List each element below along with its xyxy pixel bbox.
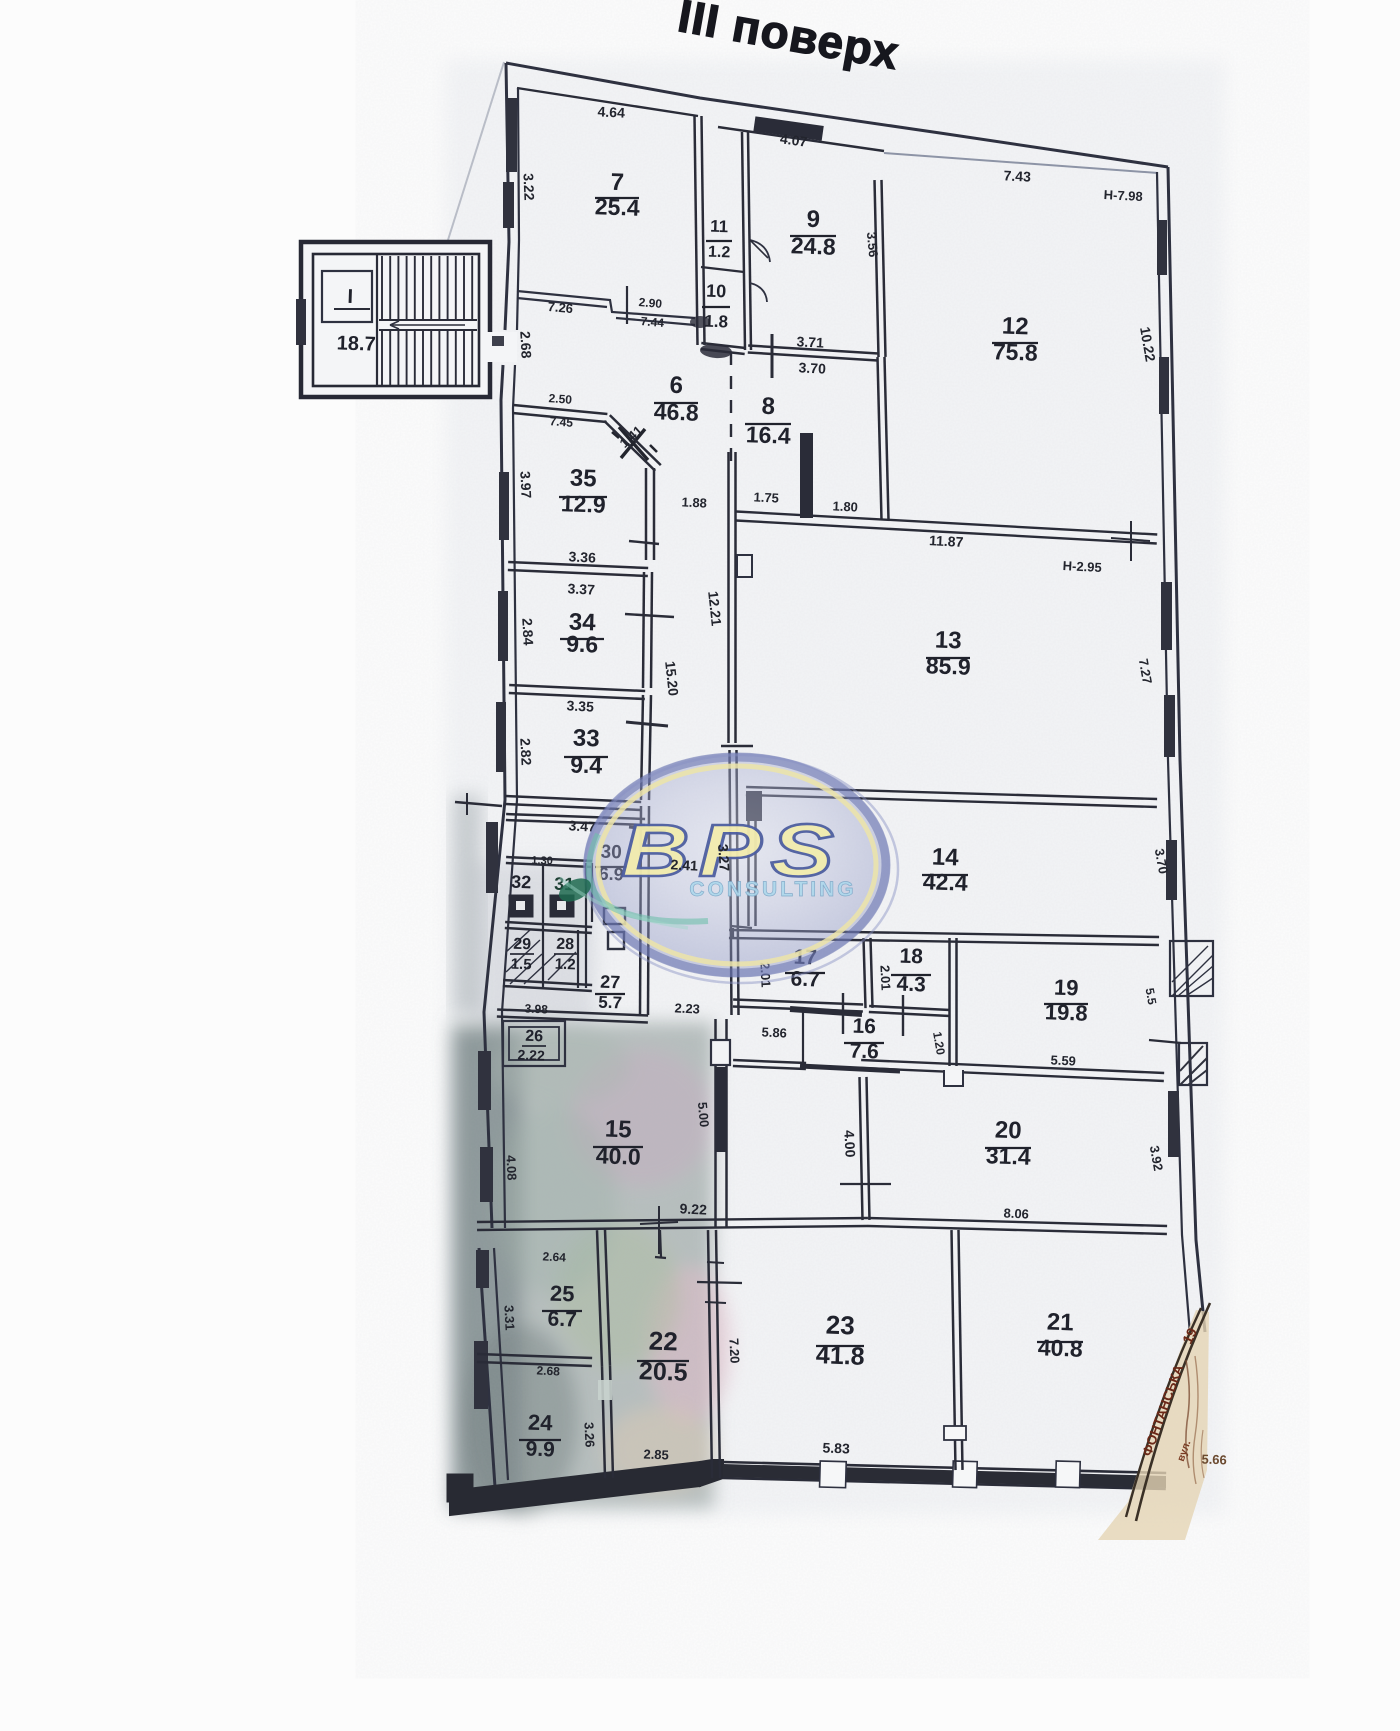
svg-text:11: 11 [710,217,729,237]
svg-text:11.87: 11.87 [929,532,964,550]
svg-text:1.30: 1.30 [531,855,553,868]
svg-text:5.5: 5.5 [1143,987,1160,1006]
svg-text:85.9: 85.9 [925,652,971,680]
svg-text:46.8: 46.8 [653,398,699,426]
svg-text:1.8: 1.8 [704,312,728,332]
svg-text:12: 12 [1001,313,1029,341]
svg-text:16: 16 [852,1015,876,1039]
svg-text:9: 9 [806,206,820,233]
svg-text:2.85: 2.85 [643,1447,669,1463]
svg-text:3.56: 3.56 [864,231,881,258]
svg-text:3.70: 3.70 [798,359,826,376]
svg-text:5.66: 5.66 [1201,1452,1227,1468]
svg-text:4.3: 4.3 [896,973,926,997]
svg-text:3.31: 3.31 [501,1305,517,1331]
svg-text:5.59: 5.59 [1050,1052,1076,1068]
svg-text:3.71: 3.71 [796,333,824,350]
svg-text:7.44: 7.44 [640,314,665,330]
svg-text:24.8: 24.8 [790,232,836,260]
svg-text:16.4: 16.4 [745,421,791,449]
svg-text:2.84: 2.84 [519,618,536,646]
svg-text:3.35: 3.35 [566,697,594,714]
svg-text:7.6: 7.6 [849,1040,879,1064]
svg-text:CONSULTING: CONSULTING [689,878,856,901]
svg-text:1.2: 1.2 [554,956,575,974]
svg-text:41.8: 41.8 [815,1341,865,1371]
svg-text:5.7: 5.7 [598,993,622,1013]
svg-text:1.2: 1.2 [708,244,731,262]
svg-text:1.5: 1.5 [510,956,531,974]
svg-text:27: 27 [600,972,621,993]
svg-text:I: I [347,286,353,308]
svg-text:6: 6 [669,372,683,399]
svg-text:31.4: 31.4 [985,1142,1031,1170]
svg-text:4.00: 4.00 [841,1130,858,1158]
svg-text:25.4: 25.4 [594,193,640,221]
svg-text:1.80: 1.80 [832,498,858,514]
svg-text:4.08: 4.08 [503,1155,519,1181]
svg-text:1.75: 1.75 [753,489,779,505]
svg-text:7.45: 7.45 [549,414,574,430]
svg-text:3.37: 3.37 [567,580,595,597]
svg-text:19: 19 [1054,975,1079,1001]
svg-text:32: 32 [511,872,532,893]
svg-text:5.83: 5.83 [822,1440,850,1457]
svg-text:25: 25 [550,1281,575,1307]
svg-text:20.5: 20.5 [638,1357,688,1387]
svg-text:3.27: 3.27 [715,844,733,873]
svg-text:7: 7 [610,169,624,196]
svg-text:2.64: 2.64 [542,1249,566,1264]
svg-text:24: 24 [528,1410,554,1436]
svg-text:40.0: 40.0 [595,1142,641,1170]
svg-text:8.06: 8.06 [1003,1205,1029,1221]
svg-text:18.7: 18.7 [336,332,376,355]
svg-text:20: 20 [994,1117,1022,1145]
svg-text:40.8: 40.8 [1037,1334,1083,1362]
svg-text:29: 29 [513,936,531,954]
svg-text:9.6: 9.6 [566,630,599,657]
svg-text:3.22: 3.22 [521,173,538,201]
svg-text:2.50: 2.50 [548,391,573,407]
svg-text:18: 18 [899,945,923,969]
svg-text:2.82: 2.82 [517,738,534,766]
svg-text:12.9: 12.9 [560,490,606,518]
svg-text:7.26: 7.26 [547,299,574,316]
svg-text:13: 13 [934,627,962,655]
svg-text:1.88: 1.88 [681,494,707,510]
svg-text:9.4: 9.4 [570,751,603,778]
svg-text:3.98: 3.98 [524,1001,548,1016]
svg-text:26: 26 [525,1028,543,1046]
svg-text:6.7: 6.7 [790,968,820,992]
svg-text:7.20: 7.20 [726,1338,742,1364]
svg-text:75.8: 75.8 [992,338,1038,366]
svg-text:21: 21 [1046,1309,1074,1337]
svg-text:28: 28 [556,936,574,954]
svg-text:23: 23 [825,1310,855,1341]
svg-text:2.01: 2.01 [877,965,893,991]
svg-text:Н-2.95: Н-2.95 [1062,558,1102,575]
svg-text:2.41: 2.41 [670,856,698,873]
svg-text:6.7: 6.7 [547,1308,577,1332]
svg-text:2.23: 2.23 [674,1000,700,1016]
svg-text:3.97: 3.97 [517,471,534,499]
svg-text:9.22: 9.22 [679,1200,707,1217]
svg-text:3.26: 3.26 [581,1422,597,1448]
svg-text:2.68: 2.68 [536,1363,560,1378]
svg-text:19.8: 19.8 [1044,999,1088,1025]
svg-text:3.36: 3.36 [568,548,596,565]
svg-text:2.68: 2.68 [517,331,534,359]
svg-text:7.43: 7.43 [1003,167,1031,184]
svg-text:15: 15 [604,1116,632,1144]
svg-text:10: 10 [706,281,727,302]
svg-text:5.00: 5.00 [695,1101,712,1128]
svg-text:33: 33 [572,725,600,753]
svg-text:35: 35 [569,465,597,493]
svg-text:2.22: 2.22 [517,1047,545,1064]
svg-text:14: 14 [931,844,959,872]
svg-text:2.90: 2.90 [638,295,663,311]
svg-text:Н-7.98: Н-7.98 [1103,187,1143,204]
svg-text:42.4: 42.4 [922,868,968,896]
svg-text:9.9: 9.9 [525,1438,555,1462]
svg-text:22: 22 [648,1326,678,1357]
svg-text:4.64: 4.64 [597,103,625,120]
svg-text:5.86: 5.86 [761,1024,787,1040]
svg-text:8: 8 [761,393,775,420]
